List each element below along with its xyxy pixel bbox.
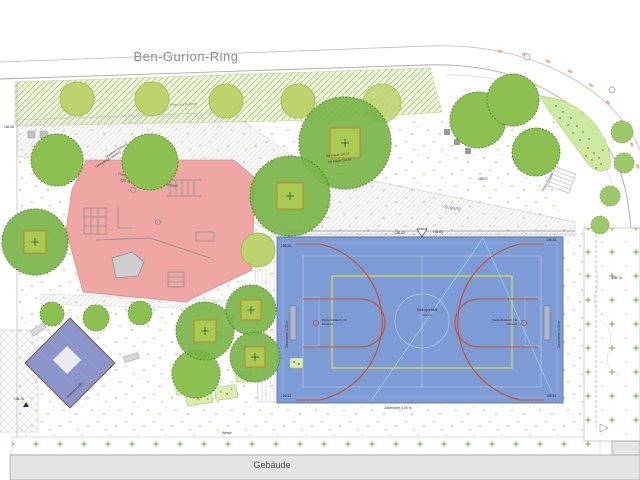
elevation: 136.74 — [612, 276, 622, 280]
basketball-court: Kleinspielfeld 430 m² Basketballkorb mit… — [277, 229, 563, 410]
elevation: 136.84 — [433, 230, 443, 234]
elevation: 136.40 — [546, 394, 556, 398]
street-lamp-icon — [524, 54, 530, 60]
elevation: 136.28 — [546, 238, 556, 242]
existing-pavement — [0, 330, 38, 432]
wiese-label: Wiese — [222, 431, 232, 435]
fence-label-bottom: Zaunhöhe 4.00 m — [384, 406, 412, 410]
elevation: 136.08 — [4, 125, 14, 129]
elevation: 136.43 — [395, 231, 405, 235]
elevation: 136.13 — [281, 394, 291, 398]
building-label: Gebäude — [253, 460, 290, 470]
meadow-strip — [12, 437, 600, 455]
court-center-label: Kleinspielfeld — [417, 308, 438, 312]
elevation: 136.07 — [478, 177, 488, 181]
landscape-site-plan: Ben-Gurion-Ring — [0, 0, 640, 480]
street-label: Ben-Gurion-Ring — [133, 49, 238, 64]
hoop-label-right-2: Zielbrett — [506, 322, 517, 326]
backboard-right — [544, 306, 550, 340]
street-lamp-icon — [609, 87, 615, 93]
meadow-right — [584, 228, 640, 441]
elevation: 136.26 — [14, 397, 24, 401]
court-center-area: 430 m² — [422, 313, 431, 317]
fence-label-right: Zaunhöhe 4.00 m — [557, 320, 561, 348]
backboard-left — [290, 306, 296, 340]
fence-label-left: Zaunhöhe 4.00 m — [285, 320, 289, 348]
hoop-label-left-2: Zielbrett — [322, 322, 333, 326]
elevation: 136.15 — [281, 244, 291, 248]
